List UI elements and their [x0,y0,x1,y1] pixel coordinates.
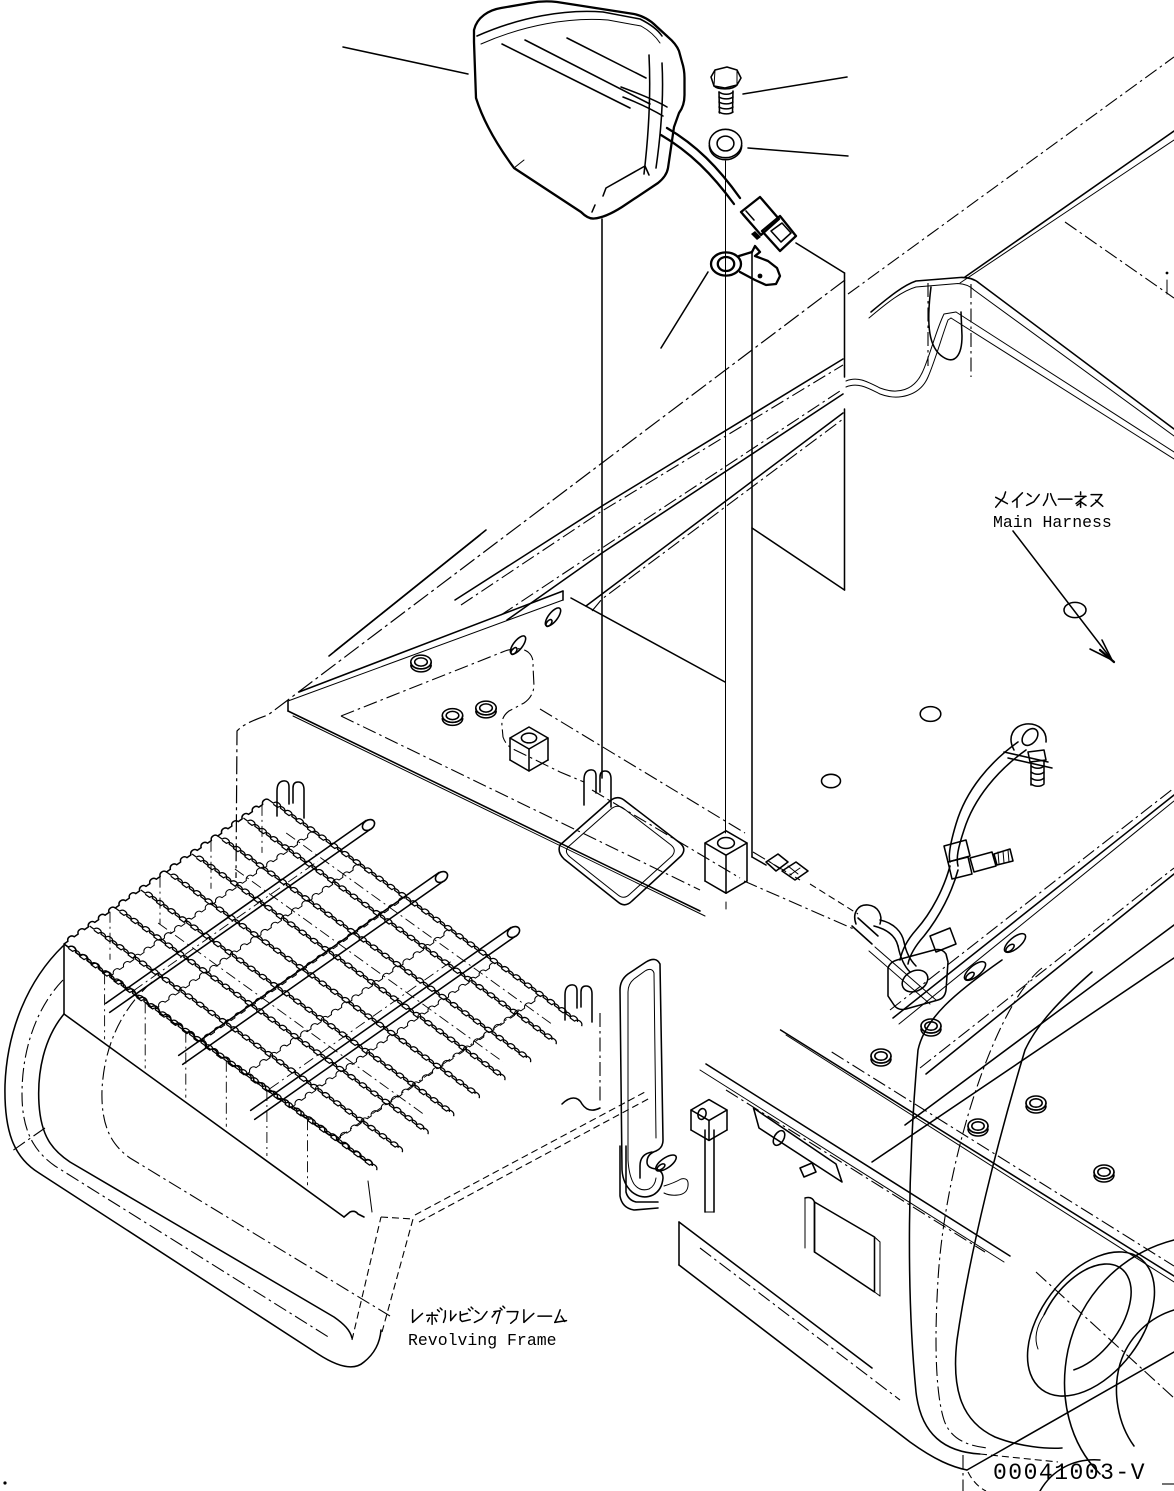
svg-text:00041003-V: 00041003-V [993,1460,1146,1486]
svg-text:Main Harness: Main Harness [993,513,1112,532]
svg-text:Revolving Frame: Revolving Frame [408,1331,557,1350]
